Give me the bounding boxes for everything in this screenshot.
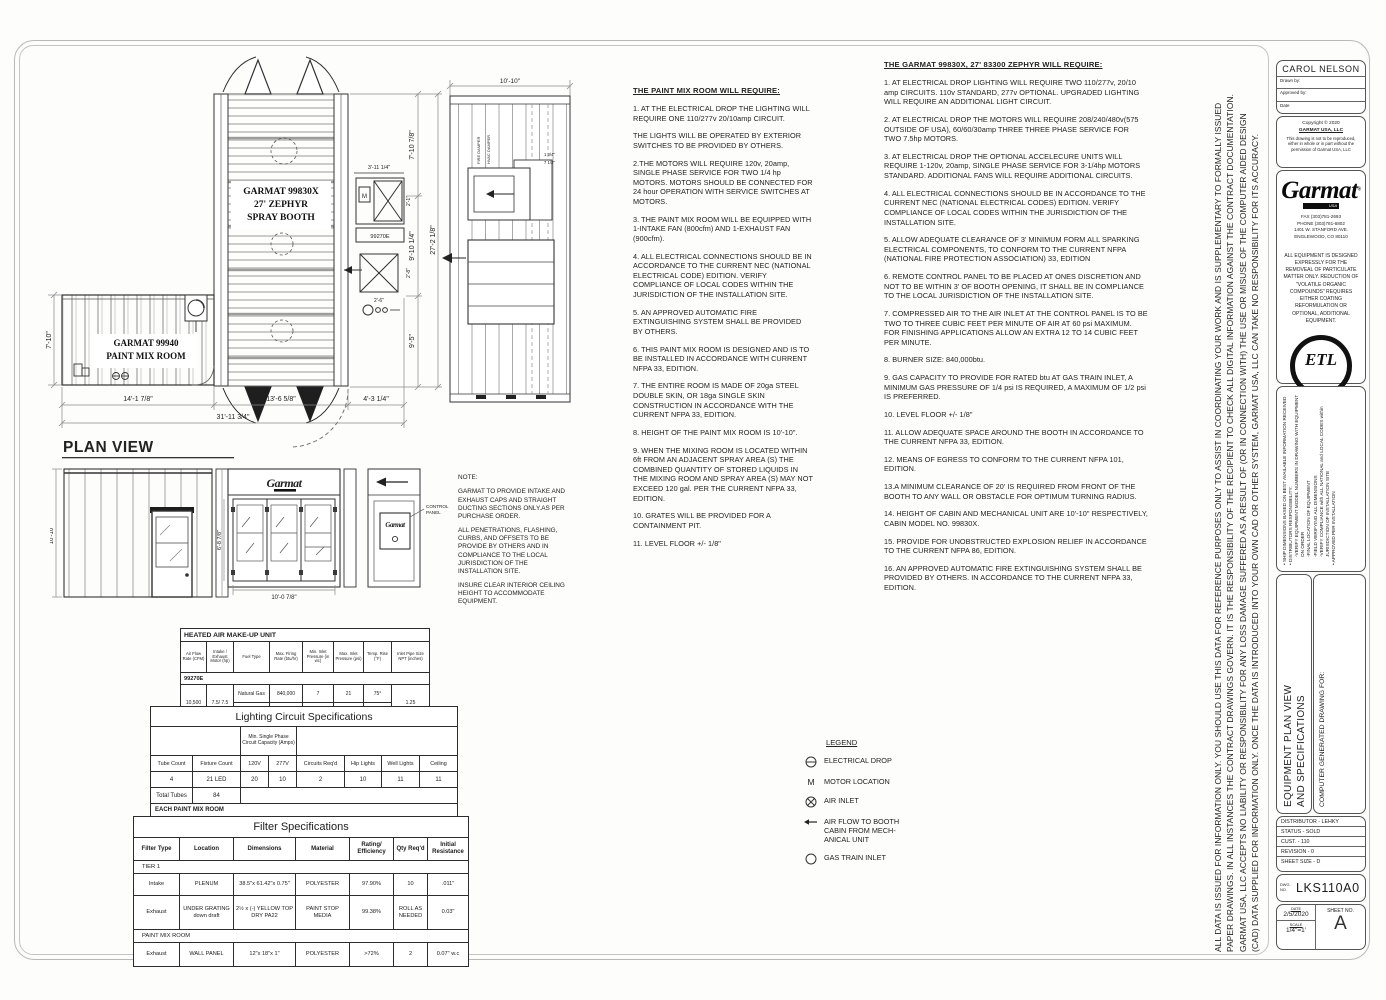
filter-specifications-table: Filter Specifications Filter Type Locati… [133, 816, 469, 967]
spec-note: 1. AT THE ELECTRICAL DROP THE LIGHTING W… [633, 104, 813, 123]
legend-label: AIR INLET [824, 796, 859, 805]
garmat-logo: Garmat® USA [1277, 177, 1365, 209]
address-line2: ENGLEWOOD, CO 80110 [1277, 234, 1365, 241]
equipment-note: ALL EQUIPMENT IS DESIGNED EXPRESSLY FOR … [1282, 253, 1360, 326]
cell: .011" [428, 874, 469, 896]
section-view-drawing: 10'-10" FIRE DAMPER HVAC DAMPER 1 3/4" 7… [440, 72, 580, 412]
spec-note: 7. THE ENTIRE ROOM IS MADE OF 20ga STEEL… [633, 381, 813, 420]
col-header: 120V [241, 756, 269, 772]
legend-label: GAS TRAIN INLET [824, 853, 886, 862]
col-header: Temp. Rise (°F) [364, 642, 392, 673]
gas-train-inlet-icon [798, 853, 824, 865]
dim-door-height: 6'-8 7/8" [217, 530, 223, 550]
section-row: TIER 1 [134, 861, 469, 874]
note-paragraph: INSURE CLEAR INTERIOR CEILING HEIGHT TO … [458, 582, 572, 607]
col-header: Well Lights [382, 756, 420, 772]
col-header: Max. Firing Rate (btu/hr) [270, 642, 303, 673]
spec-note: 6. REMOTE CONTROL PANEL TO BE PLACED AT … [884, 272, 1148, 301]
air-flow-arrow-icon [798, 817, 824, 827]
spec-note: 10. LEVEL FLOOR +/- 1/8" [884, 410, 1148, 420]
cell: PAINT STOP MEDIA [296, 896, 350, 930]
cell: 75° [364, 685, 392, 703]
cell: 99.38% [350, 896, 394, 930]
logo-registered-mark: ® [1357, 188, 1360, 193]
date-value: 2/5/2020 [1277, 911, 1315, 918]
cell: Exhaust [134, 896, 180, 930]
legend-item: AIR INLET [798, 796, 933, 808]
cell: POLYESTER [296, 874, 350, 896]
legend: LEGEND ELECTRICAL DROP M MOTOR LOCATION … [798, 738, 933, 874]
cell: Exhaust [134, 943, 180, 967]
spec-note: THE LIGHTS WILL BE OPERATED BY EXTERIOR … [633, 131, 813, 150]
phone: PHONE (303)781-6802 [1277, 221, 1365, 228]
ship-notes-box: • SHIP DIMENSIONS BASED ON BEST AVAILABL… [1276, 386, 1366, 572]
air-flow-arrow-icon [442, 253, 452, 263]
total-label: Total Tubes [151, 788, 193, 804]
col-header: Max. Inlet Pressure (psi) [334, 642, 364, 673]
cell: 2½ x (-) YELLOW TOP DRY PA22 [234, 896, 296, 930]
cell: 10 [394, 874, 428, 896]
air-inlet-icon [798, 796, 824, 808]
spec-note: 16. AN APPROVED AUTOMATIC FIRE EXTINGUIS… [884, 564, 1148, 593]
cell: Intake [134, 874, 180, 896]
dim-left: 7'-10" [46, 331, 53, 349]
legend-title: LEGEND [826, 738, 933, 747]
generated-for-box: COMPUTER GENERATED DRAWING FOR: [1313, 574, 1366, 814]
general-note: NOTE: GARMAT TO PROVIDE INTAKE AND EXHAU… [458, 474, 572, 612]
spec-note: 5. AN APPROVED AUTOMATIC FIRE EXTINGUISH… [633, 308, 813, 337]
spec-note: 14. HEIGHT OF CABIN AND MECHANICAL UNIT … [884, 509, 1148, 528]
col-header: Intake / Exhaust Motor (hp) [207, 642, 234, 673]
col-header: Location [180, 838, 234, 861]
unit-model: 99270E [181, 673, 430, 685]
drawn-by-label: Drawn by: [1277, 77, 1365, 89]
cell: 7 [303, 685, 334, 703]
dim-bottom-total: 31'-11 3/4" [217, 414, 250, 421]
col-header: Qty Req'd [394, 838, 428, 861]
company-name: GARMAT USA, LLC [1277, 128, 1365, 133]
dwg-no-label: DWG. NO. [1277, 883, 1296, 893]
cell: >72% [350, 943, 394, 967]
disclaimer-line: PAPER DRAWINGS. IN ALL INSTANCES THE CON… [1224, 46, 1236, 952]
sheet-size-row: SHEET SIZE - D [1277, 857, 1365, 866]
legend-label: ELECTRICAL DROP [824, 756, 892, 765]
spec-note: 3. AT ELECTRICAL DROP THE OPTIONAL ACCEL… [884, 152, 1148, 181]
disclaimer-line: ALL DATA IS ISSUED FOR INFORMATION ONLY.… [1212, 46, 1224, 952]
cell: POLYESTER [296, 943, 350, 967]
paint-mix-room-requirements: THE PAINT MIX ROOM WILL REQUIRE: 1. AT T… [633, 86, 813, 556]
table-title: HEATED AIR MAKE-UP UNIT [181, 629, 430, 642]
paint-mix-room-requirements-title: THE PAINT MIX ROOM WILL REQUIRE: [633, 86, 813, 96]
dim-elevation-height: 10'-10" [50, 526, 55, 545]
legend-item: AIR FLOW TO BOOTH CABIN FROM MECH-ANICAL… [798, 817, 933, 844]
mech-model-label: 99270E [370, 234, 390, 240]
drawn-by-name: CAROL NELSON [1277, 61, 1365, 77]
right-dimensions [350, 91, 442, 390]
hvac-damper-label: HVAC DAMPER [486, 135, 491, 164]
cell: ROLL AS NEEDED [394, 896, 428, 930]
col-header: Fuel Type [234, 642, 270, 673]
ship-note: -VERIFY COMPLIANCE with ALL NATIONAL and… [1319, 389, 1331, 565]
booth-requirements-title: THE GARMAT 99830X, 27' 83300 ZEPHYR WILL… [884, 60, 1148, 70]
note-heading: NOTE: [458, 474, 572, 482]
paint-mix-room-plan: GARMAT 99940 PAINT MIX ROOM [62, 295, 214, 385]
etl-word: ETL [1295, 350, 1347, 370]
spec-note: 3. THE PAINT MIX ROOM WILL BE EQUIPPED W… [633, 215, 813, 244]
dim-section-width: 10'-10" [500, 78, 521, 85]
gas-train-inlet-symbol [363, 305, 373, 315]
disclaimer-line: GARMAT USA, LLC ACCEPTS NO LIABILITY OR … [1237, 46, 1249, 952]
plan-view-title: PLAN VIEW [63, 439, 154, 456]
sheet-number: A [1316, 914, 1365, 933]
drawing-title-box: EQUIPMENT PLAN VIEW AND SPECIFICATIONS [1276, 574, 1312, 814]
blank-cell [241, 788, 458, 804]
exhaust-arrow-icons-top [223, 57, 339, 94]
spec-note: 15. PROVIDE FOR UNOBSTRUCTED EXPLOSION R… [884, 537, 1148, 556]
col-header: Rating/ Efficiency [350, 838, 394, 861]
spec-note: 2. AT ELECTRICAL DROP THE MOTORS WILL RE… [884, 115, 1148, 144]
dim-right-total: 27'-2 1/8" [430, 225, 437, 255]
spec-note: 5. ALLOW ADEQUATE CLEARANCE OF 3' MINIMU… [884, 235, 1148, 264]
col-header: Initial Resistance [428, 838, 469, 861]
spec-note: 7. COMPRESSED AIR TO THE AIR INLET AT TH… [884, 309, 1148, 348]
spec-note: 8. HEIGHT OF THE PAINT MIX ROOM IS 10'-1… [633, 428, 813, 438]
dim-mech-1: 2'-1" [406, 196, 412, 206]
mech-cabinet-elevation: Garmat [368, 469, 424, 587]
blank-cell [151, 727, 241, 756]
booth-front-elevation: Garmat [228, 469, 340, 587]
cell: 21 [334, 685, 364, 703]
legend-item: ELECTRICAL DROP [798, 756, 933, 768]
note-paragraph: ALL PENETRATIONS, FLASHING, CURBS, AND O… [458, 527, 572, 577]
cell: WALL PANEL [180, 943, 234, 967]
ship-note: -VERIFY EQUIPMENT MODEL NUMBERS IN DRAWI… [1294, 389, 1306, 565]
customer-row: CUST. - 110 [1277, 837, 1365, 847]
col-header: Tube Count [151, 756, 193, 772]
dim-section-b: 7 1/2" [544, 160, 555, 165]
mixroom-label-line2: PAINT MIX ROOM [106, 351, 186, 361]
dim-door-width: 10'-0 7/8" [271, 595, 296, 601]
dim-bottom-3: 4'-3 1/4" [363, 396, 389, 403]
spec-note: 9. WHEN THE MIXING ROOM IS LOCATED WITHI… [633, 446, 813, 504]
cell: 2 [394, 943, 428, 967]
fire-damper-label: FIRE DAMPER [476, 137, 481, 164]
col-header: 277V [269, 756, 297, 772]
spray-booth-plan: GARMAT 99830X 27' ZEPHYR SPRAY BOOTH [214, 57, 348, 447]
mixroom-elevation [64, 469, 212, 597]
cell: 97.90% [350, 874, 394, 896]
booth-label-line3: SPRAY BOOTH [247, 213, 315, 223]
col-header: Dimensions [234, 838, 296, 861]
copyright-box: Copyright © 2020 GARMAT USA, LLC This dr… [1276, 116, 1366, 168]
control-panel-label-2: PANEL [426, 510, 441, 515]
generated-for-label: COMPUTER GENERATED DRAWING FOR: [1318, 579, 1329, 807]
spec-note: 6. THIS PAINT MIX ROOM IS DESIGNED AND I… [633, 345, 813, 374]
dwg-number: LKS110A0 [1296, 881, 1360, 895]
dim-right-seg1: 7'-10 7/8" [409, 130, 416, 160]
dim-bottom-1: 14'-1 7/8" [123, 396, 153, 403]
svg-text:Garmat: Garmat [385, 521, 406, 529]
spec-note: 8. BURNER SIZE: 840,000btu. [884, 355, 1148, 365]
cell: 840,000 [270, 685, 303, 703]
section-row: PAINT MIX ROOM [134, 930, 469, 943]
motor-icon: M [798, 777, 824, 787]
legend-item: GAS TRAIN INLET [798, 853, 933, 865]
dim-mech-2: 2'-8" [406, 268, 412, 278]
col-header: Air Flow Rate (CFM) [181, 642, 207, 673]
table-title: Lighting Circuit Specifications [151, 707, 458, 727]
cell: Natural Gas [234, 685, 270, 703]
booth-label-line2: 27' ZEPHYR [254, 200, 308, 210]
mixroom-label-line1: GARMAT 99940 [114, 338, 179, 348]
date-scale-sheet-box: DATE 2/5/2020 SCALE 1/4"=1' SHEET NO. A [1276, 904, 1366, 950]
drawing-title-line1: EQUIPMENT PLAN VIEW [1283, 579, 1296, 807]
cell: 11 [420, 772, 458, 788]
garmat-logo: Garmat [266, 476, 302, 490]
col-header: Fixture Count [193, 756, 241, 772]
dim-section-a: 1 3/4" [544, 152, 555, 157]
cell: PLENUM [180, 874, 234, 896]
dwg-number-box: DWG. NO. LKS110A0 [1276, 874, 1366, 902]
copyright-line: Copyright © 2020 [1277, 121, 1365, 126]
col-header: Material [296, 838, 350, 861]
order-info-box: DISTRIBUTOR - LEHKY STATUS - SOLD CUST. … [1276, 816, 1366, 872]
spec-note: 4. ALL ELECTRICAL CONNECTIONS SHOULD BE … [884, 189, 1148, 228]
disclaimer-line: (CAD) DATA SUPPLIED FOR INFORMATION ONLY… [1249, 46, 1261, 952]
fax: FAX (303)781-2693 [1277, 214, 1365, 221]
approved-by-label: Approved by: [1277, 89, 1365, 102]
booth-requirements: THE GARMAT 99830X, 27' 83300 ZEPHYR WILL… [884, 60, 1148, 601]
cell: 2 [297, 772, 345, 788]
dim-right-seg3: 9'-5" [409, 334, 416, 348]
company-box: Garmat® USA FAX (303)781-2693 PHONE (303… [1276, 170, 1366, 384]
distributor-row: DISTRIBUTOR - LEHKY [1277, 817, 1365, 827]
cell: 11 [382, 772, 420, 788]
drawn-by-box: CAROL NELSON Drawn by: Approved by: Date [1276, 60, 1366, 114]
mech-cabinet-section [468, 240, 554, 324]
ship-note: • APPROVED PER INSTALLATION [1331, 389, 1337, 565]
col-header: Min. Inlet Pressure (in wc) [303, 642, 334, 673]
booth-label-line1: GARMAT 99830X [243, 187, 319, 197]
status-row: STATUS - SOLD [1277, 827, 1365, 837]
cell: 20 [241, 772, 269, 788]
drawing-title-line2: AND SPECIFICATIONS [1296, 579, 1309, 807]
legend-label: AIR FLOW TO BOOTH CABIN FROM MECH-ANICAL… [824, 817, 902, 844]
spec-note: 9. GAS CAPACITY TO PROVIDE FOR RATED btu… [884, 373, 1148, 402]
dim-mech-width: 3'-11 1/4" [368, 165, 390, 171]
cell: 12"x 18"x 1" [234, 943, 296, 967]
front-elevation-drawing: 10'-10" Garmat 6'-8 7/8" 10' [50, 455, 450, 630]
note-paragraph: GARMAT TO PROVIDE INTAKE AND EXHAUST CAP… [458, 488, 572, 521]
date-label: Date [1277, 102, 1365, 109]
spec-note: 1. AT ELECTRICAL DROP LIGHTING WILL REQU… [884, 78, 1148, 107]
spec-note: 13.A MINIMUM CLEARANCE OF 20' IS REQUIRE… [884, 482, 1148, 501]
dim-bottom-2: 13'-6 5/8" [266, 396, 296, 403]
mechanical-unit-plan: M 99270E [344, 173, 404, 315]
blank-cell [297, 727, 458, 756]
col-header: Hip Lights [345, 756, 382, 772]
cell: 21 LED [193, 772, 241, 788]
address-line1: 1401 W. STANFORD AVE. [1277, 227, 1365, 234]
spec-note: 10. GRATES WILL BE PROVIDED FOR A CONTAI… [633, 511, 813, 530]
section-row: EACH PAINT MIX ROOM [151, 804, 458, 817]
col-header: Ceiling [420, 756, 458, 772]
spec-note: 12. MEANS OF EGRESS TO CONFORM TO THE CU… [884, 455, 1148, 474]
control-panel-box [380, 513, 410, 549]
span-header: Min. Single Phase Circuit Capacity (Amps… [241, 727, 297, 756]
cell: 10 [269, 772, 297, 788]
cad-data-disclaimer: ALL DATA IS ISSUED FOR INFORMATION ONLY.… [1212, 46, 1262, 952]
legend-label: MOTOR LOCATION [824, 777, 890, 786]
legend-item: M MOTOR LOCATION [798, 777, 933, 787]
cell: 0.03" [428, 896, 469, 930]
cad-sheet: { "plan": { "title": "PLAN VIEW", "booth… [0, 0, 1386, 1000]
cell: 10 [345, 772, 382, 788]
col-header: Inlet Pipe Size NPT (inches) [392, 642, 430, 673]
spec-note: 2.THE MOTORS WILL REQUIRE 120v, 20amp, S… [633, 159, 813, 207]
cell: 4 [151, 772, 193, 788]
col-header: Filter Type [134, 838, 180, 861]
copyright-note: This drawing is not to be reproduced, ei… [1283, 136, 1359, 152]
revision-row: REVISION - 0 [1277, 847, 1365, 857]
logo-text: Garmat [1281, 177, 1357, 204]
motor-symbol: M [362, 194, 367, 200]
dim-right-seg2: 9'-10 1/4" [409, 231, 416, 261]
spec-note: 11. LEVEL FLOOR +/- 1/8" [633, 539, 813, 549]
cell: 0.07" w.c [428, 943, 469, 967]
col-header: Circuits Req'd [297, 756, 345, 772]
scale-value: 1/4"=1' [1277, 927, 1315, 934]
dim-mech-3: 2'-6" [374, 298, 384, 304]
control-panel-label-1: CONTROL [426, 504, 449, 509]
table-title: Filter Specifications [134, 817, 469, 838]
total-value: 84 [193, 788, 241, 804]
electrical-drop-icon [798, 756, 824, 768]
cell: UNDER GRATING down draft [180, 896, 234, 930]
spec-note: 11. ALLOW ADEQUATE SPACE AROUND THE BOOT… [884, 428, 1148, 447]
spec-note: 4. ALL ELECTRICAL CONNECTIONS SHOULD BE … [633, 252, 813, 300]
cell: 38.5"x 61.42"x 0.75" [234, 874, 296, 896]
